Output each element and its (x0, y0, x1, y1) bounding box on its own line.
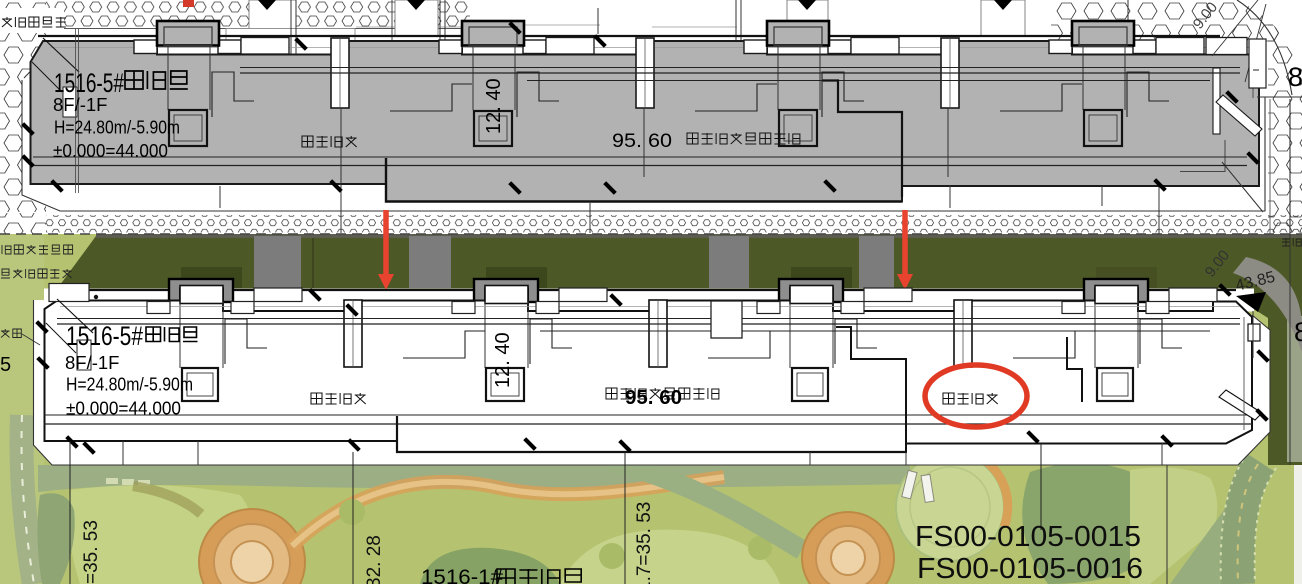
svg-text:12. 40: 12. 40 (483, 78, 505, 134)
svg-text:12. 40: 12. 40 (492, 332, 514, 388)
svg-text:1.7=35. 53: 1.7=35. 53 (634, 502, 655, 584)
svg-text:±0.000=44.000: ±0.000=44.000 (66, 399, 181, 419)
svg-text:1516-1#: 1516-1# (421, 566, 503, 584)
svg-text:±0.000=44.000: ±0.000=44.000 (53, 141, 168, 161)
svg-text:=35. 53: =35. 53 (81, 520, 102, 584)
svg-text:8F/-1F: 8F/-1F (53, 94, 107, 115)
svg-text:95. 60: 95. 60 (612, 131, 672, 152)
svg-text:H=24.80m/-5.90m: H=24.80m/-5.90m (66, 375, 193, 395)
svg-text:H=24.80m/-5.90m: H=24.80m/-5.90m (54, 118, 180, 138)
svg-text:FS00-0105-0015: FS00-0105-0015 (915, 521, 1141, 553)
svg-text:95. 60: 95. 60 (625, 387, 682, 409)
svg-text:1516-5#: 1516-5# (66, 321, 143, 351)
svg-text:FS00-0105-0016: FS00-0105-0016 (917, 553, 1143, 584)
svg-text:8: 8 (1288, 62, 1302, 92)
svg-text:5: 5 (0, 354, 11, 376)
svg-text:8: 8 (1294, 317, 1302, 347)
svg-text:8F/-1F: 8F/-1F (65, 352, 119, 373)
svg-text:32. 28: 32. 28 (364, 535, 385, 584)
